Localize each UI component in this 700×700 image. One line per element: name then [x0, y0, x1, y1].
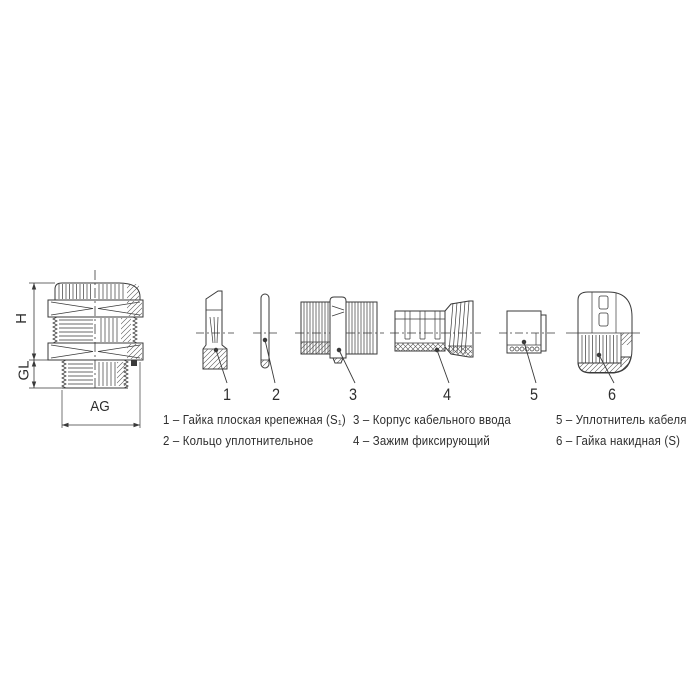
part-2-callout-number: 2: [272, 385, 280, 405]
part-3-callout-number: 3: [349, 385, 357, 405]
part-1-callout-number: 1: [223, 385, 231, 405]
legend-item-2: 2 – Кольцо уплотнительное: [163, 433, 313, 448]
legend-item-3: 3 – Корпус кабельного ввода: [353, 412, 511, 427]
cable-gland-diagram: H GL AG: [0, 0, 700, 700]
leader-lines: [0, 0, 700, 700]
legend-item-6: 6 – Гайка накидная (S): [556, 433, 680, 448]
part-5-callout-number: 5: [530, 385, 538, 405]
legend-item-5: 5 – Уплотнитель кабеля: [556, 412, 687, 427]
legend-item-1: 1 – Гайка плоская крепежная (S₁): [163, 412, 346, 427]
part-6-callout-number: 6: [608, 385, 616, 405]
part-4-callout-number: 4: [443, 385, 451, 405]
legend-item-4: 4 – Зажим фиксирующий: [353, 433, 490, 448]
